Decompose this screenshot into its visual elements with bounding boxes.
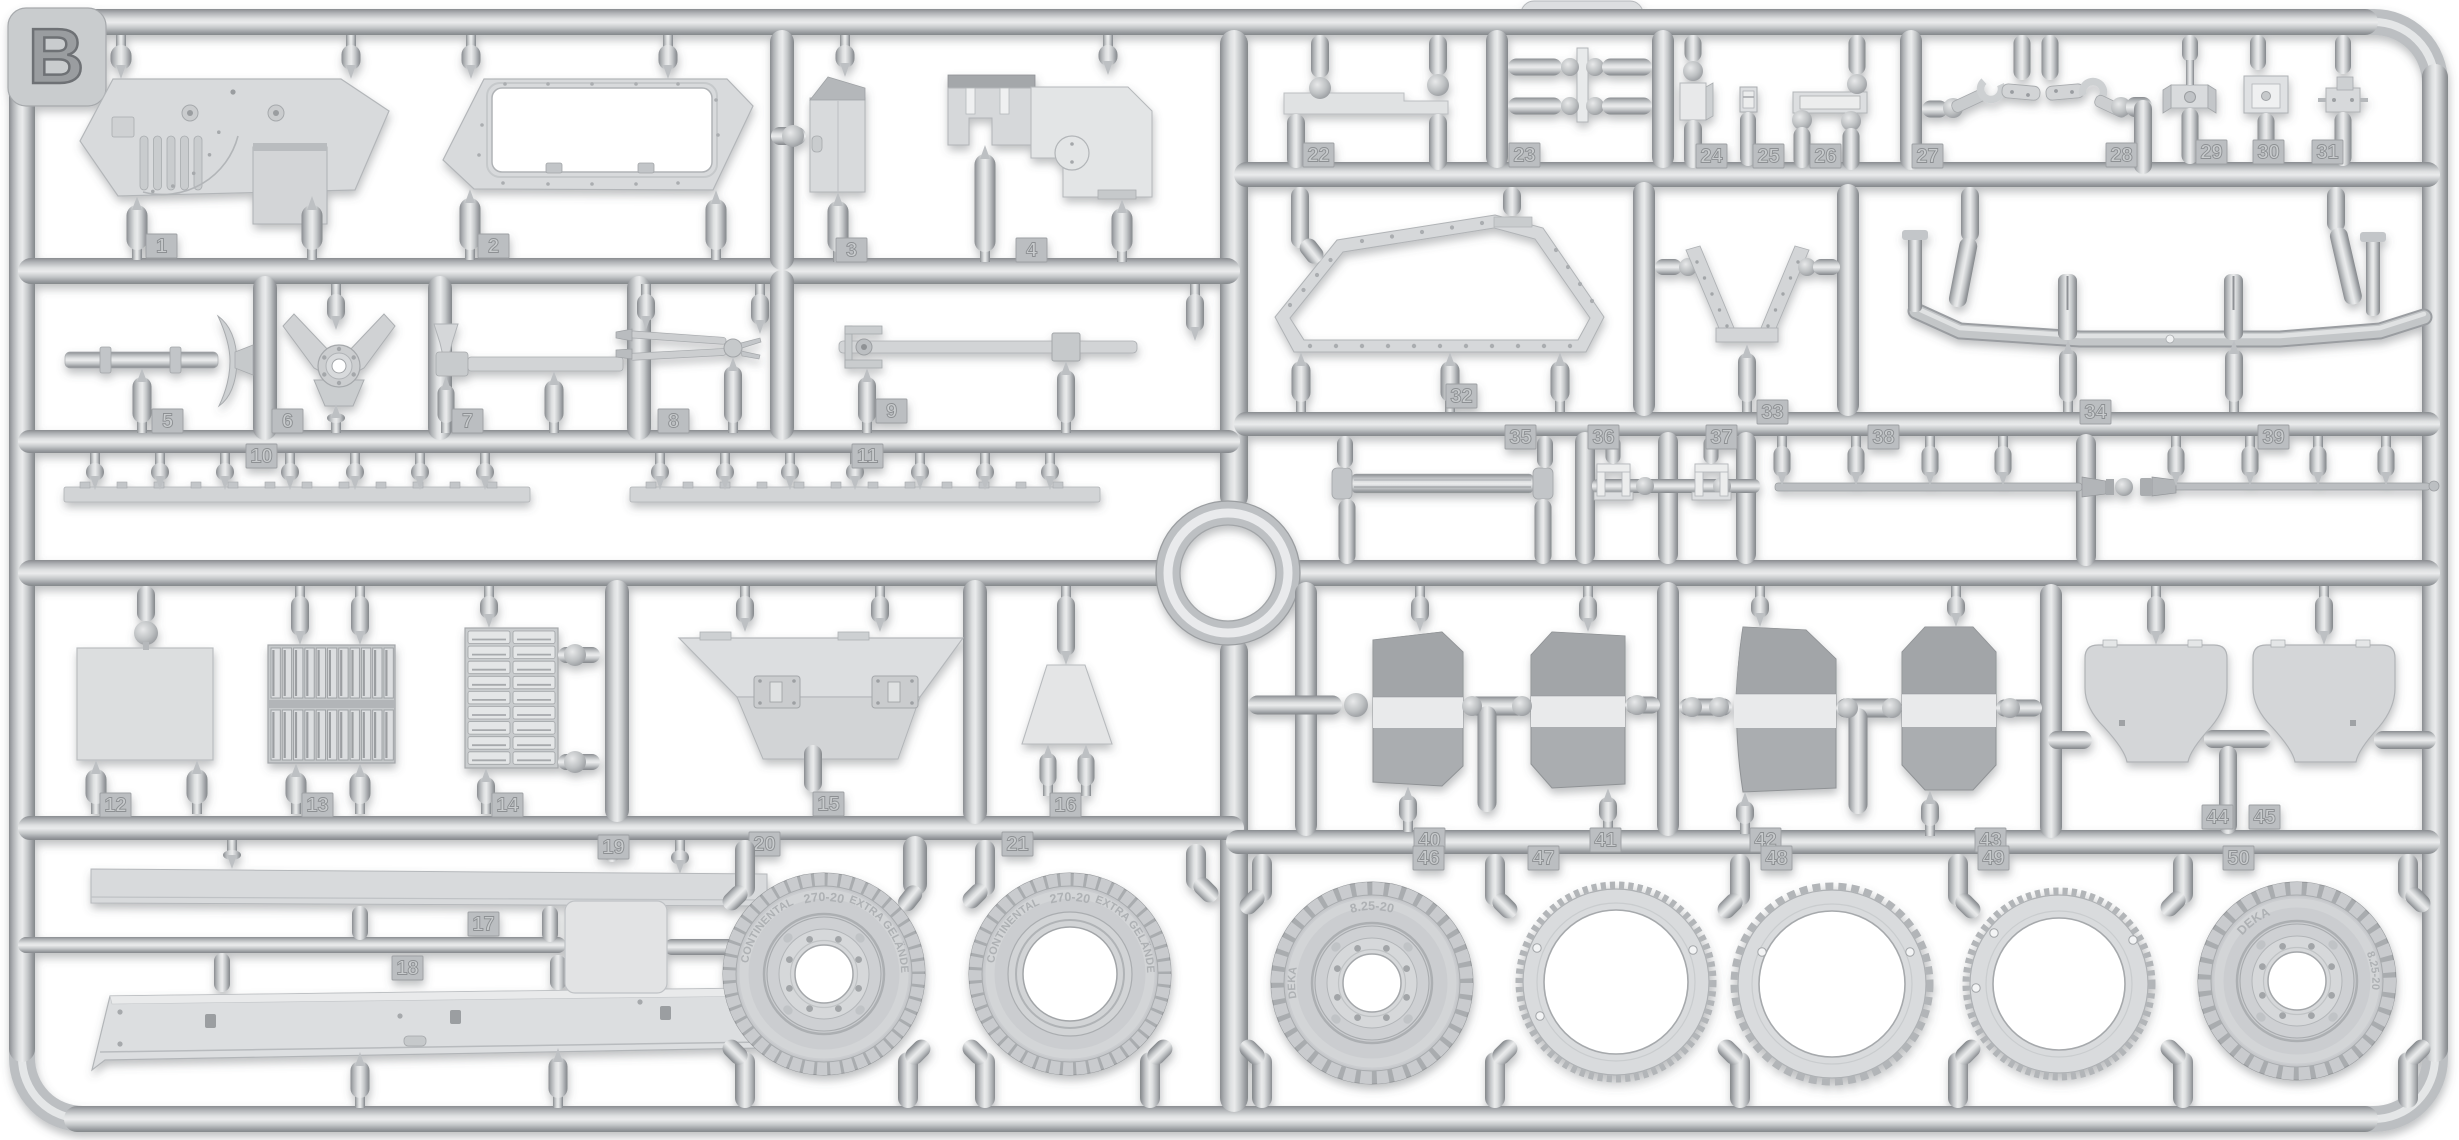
svg-text:29: 29 [2200, 142, 2222, 164]
svg-text:37: 37 [1710, 427, 1732, 449]
svg-text:32: 32 [1450, 386, 1472, 408]
svg-text:21: 21 [1006, 834, 1028, 856]
svg-text:8: 8 [668, 411, 679, 433]
svg-text:17: 17 [472, 914, 494, 936]
svg-text:5: 5 [162, 411, 173, 433]
svg-text:25: 25 [1757, 146, 1779, 168]
svg-text:41: 41 [1594, 830, 1616, 852]
svg-text:15: 15 [817, 794, 839, 816]
svg-text:30: 30 [2257, 142, 2279, 164]
svg-text:22: 22 [1307, 145, 1329, 167]
svg-text:16: 16 [1054, 795, 1076, 817]
svg-text:9: 9 [886, 401, 897, 423]
svg-text:270-20: 270-20 [802, 890, 845, 906]
svg-text:20: 20 [753, 834, 775, 856]
svg-text:50: 50 [2227, 848, 2249, 870]
svg-text:39: 39 [2262, 427, 2284, 449]
svg-text:24: 24 [1700, 146, 1723, 168]
svg-text:31: 31 [2316, 142, 2338, 164]
svg-text:2: 2 [488, 236, 499, 258]
svg-text:B: B [28, 12, 84, 100]
svg-text:35: 35 [1509, 427, 1531, 449]
svg-text:46: 46 [1417, 848, 1439, 870]
svg-text:28: 28 [2110, 145, 2132, 167]
svg-text:3: 3 [846, 240, 857, 262]
svg-text:1: 1 [156, 236, 167, 258]
svg-text:7: 7 [462, 411, 473, 433]
svg-text:26: 26 [1814, 146, 1836, 168]
svg-text:45: 45 [2253, 807, 2275, 829]
svg-text:12: 12 [104, 795, 126, 817]
svg-text:48: 48 [1765, 848, 1787, 870]
svg-text:38: 38 [1872, 427, 1894, 449]
svg-text:13: 13 [306, 795, 328, 817]
svg-text:27: 27 [1916, 146, 1938, 168]
svg-text:49: 49 [1982, 848, 2004, 870]
svg-text:44: 44 [2206, 807, 2229, 829]
svg-text:270-20: 270-20 [1048, 890, 1091, 906]
svg-text:47: 47 [1532, 848, 1554, 870]
svg-text:6: 6 [282, 411, 293, 433]
svg-text:33: 33 [1761, 402, 1783, 424]
svg-text:4: 4 [1026, 240, 1038, 262]
svg-text:36: 36 [1592, 427, 1614, 449]
svg-text:11: 11 [857, 446, 878, 468]
svg-text:10: 10 [250, 446, 272, 468]
svg-text:23: 23 [1513, 145, 1535, 167]
svg-text:18: 18 [396, 958, 418, 980]
svg-text:34: 34 [2084, 402, 2107, 424]
svg-text:19: 19 [602, 837, 624, 859]
svg-text:14: 14 [496, 795, 519, 817]
